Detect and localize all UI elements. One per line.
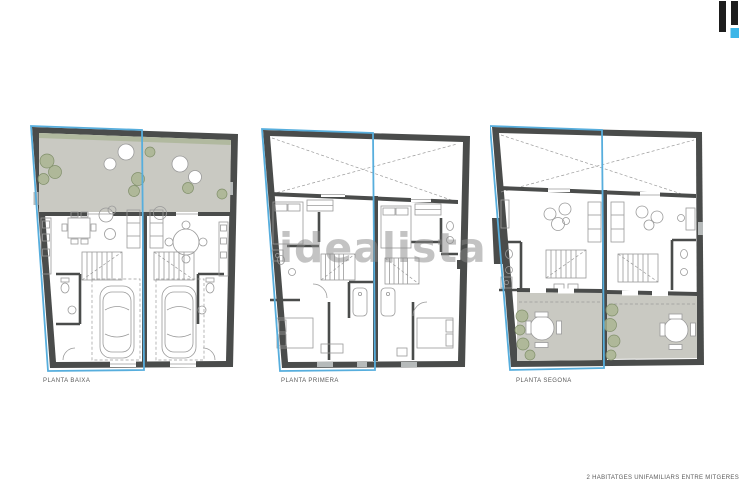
floorplan-planta-baixa [30,122,248,374]
garden-table [118,144,134,160]
idealista-watermark: idealista [279,224,487,272]
floorplan-planta-segona [490,122,714,374]
garden-table [172,156,188,172]
plan-label-segona: PLANTA SEGONA [516,378,572,384]
garden-table [104,158,116,170]
terrace-right [604,290,698,360]
floorplan-sheet: PLANTA BAIXA PLANTA PRIMERA PLANTA SEGON… [0,0,750,500]
logo-blue-dot [731,28,740,38]
terrace-table [664,318,688,342]
terrace-table [530,316,554,340]
idealista-logo-icon [716,0,744,42]
logo-bar-left [719,1,726,32]
project-caption: 2 HABITATGES UNIFAMILIARS ENTRE MITGERES [587,475,739,481]
logo-bar-right [731,1,738,25]
terrace-left [515,288,602,361]
garden-terrace [38,133,231,212]
garden-table [189,171,202,184]
plan-label-primera: PLANTA PRIMERA [281,378,339,384]
plan-label-baixa: PLANTA BAIXA [43,378,90,384]
